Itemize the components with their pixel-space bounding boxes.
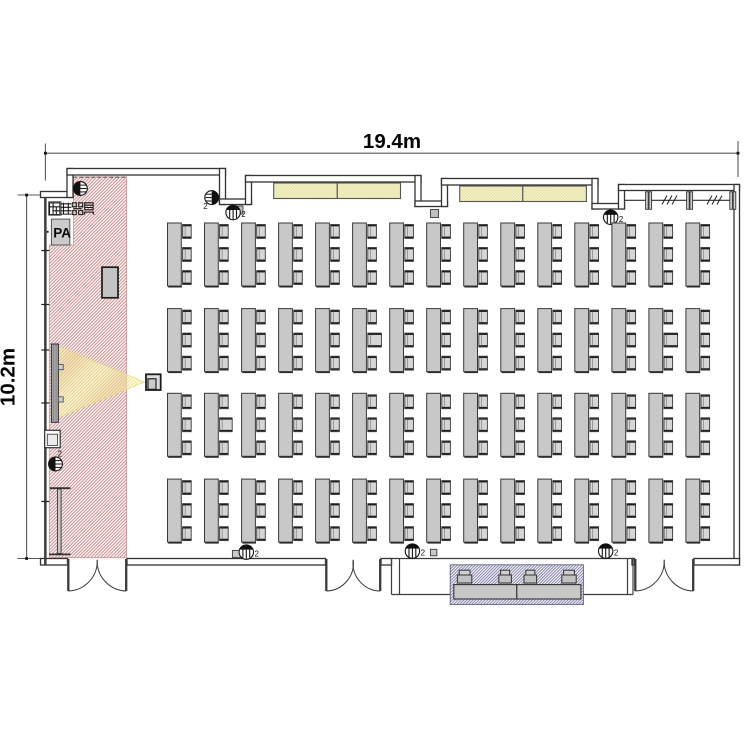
svg-text:2: 2 [421,549,426,558]
svg-text:2: 2 [255,550,260,559]
svg-text:2: 2 [619,215,624,224]
svg-text:2: 2 [614,549,619,558]
svg-text:2: 2 [241,210,246,219]
svg-text:19.4m: 19.4m [363,130,421,153]
svg-text:2: 2 [58,450,63,459]
svg-text:10.2m: 10.2m [0,348,20,406]
svg-text:PA: PA [53,226,71,241]
svg-text:2: 2 [203,202,208,211]
